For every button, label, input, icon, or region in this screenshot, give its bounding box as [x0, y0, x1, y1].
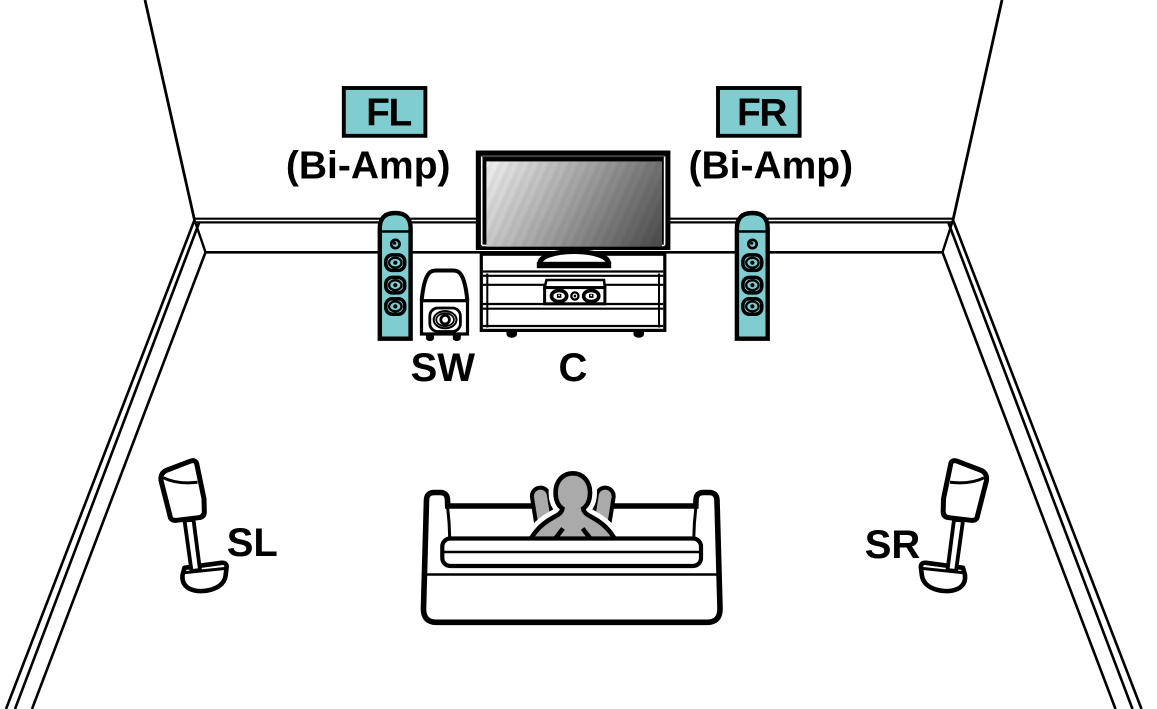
- svg-text:(Bi-Amp): (Bi-Amp): [688, 145, 853, 188]
- svg-text:(Bi-Amp): (Bi-Amp): [286, 145, 451, 188]
- svg-text:SL: SL: [227, 521, 278, 565]
- svg-text:FL: FL: [366, 91, 411, 134]
- svg-text:SR: SR: [865, 523, 921, 567]
- svg-text:SW: SW: [411, 346, 476, 390]
- svg-text:FR: FR: [737, 91, 787, 134]
- svg-text:C: C: [559, 346, 588, 390]
